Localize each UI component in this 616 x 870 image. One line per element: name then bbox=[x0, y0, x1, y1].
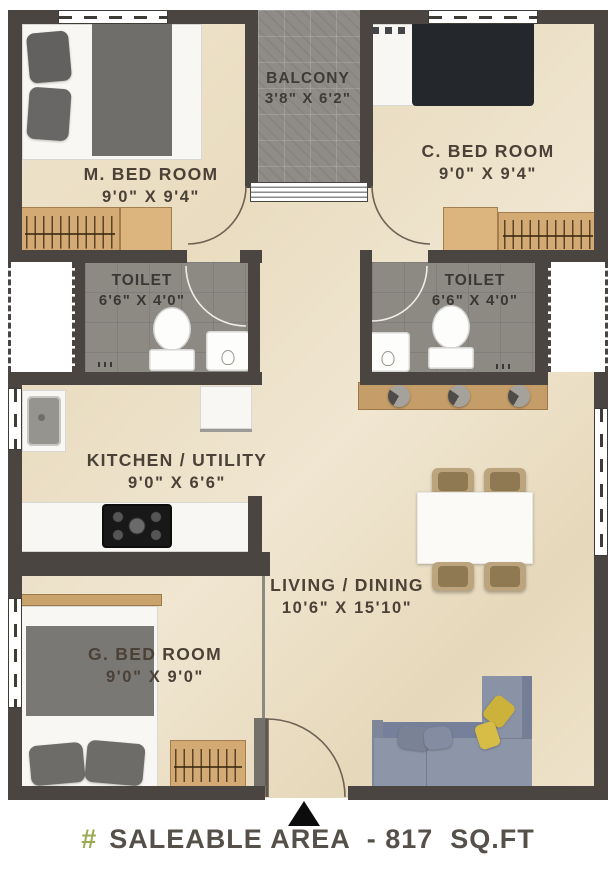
m-bedroom-pillow bbox=[26, 87, 72, 142]
room-dims: 6'6" X 4'0" bbox=[432, 292, 518, 309]
room-label-balcony: BALCONY 3'8" X 6'2" bbox=[265, 70, 351, 107]
room-dims: 6'6" X 4'0" bbox=[99, 292, 185, 309]
room-name: C. BED ROOM bbox=[422, 141, 555, 162]
right-duct bbox=[548, 262, 608, 372]
g-bedroom-pillow bbox=[28, 742, 85, 787]
entry-wall-stub bbox=[254, 718, 268, 786]
console-knob bbox=[508, 385, 530, 407]
balcony-sliding-door bbox=[250, 182, 368, 202]
g-bedroom-wall bbox=[8, 552, 270, 576]
room-dims: 10'6" X 15'10" bbox=[270, 599, 424, 618]
left-duct bbox=[8, 262, 75, 372]
room-dims: 9'0" X 9'0" bbox=[88, 668, 222, 687]
dining-chair bbox=[484, 468, 526, 495]
room-name: G. BED ROOM bbox=[88, 644, 222, 665]
toilet-right-basin bbox=[366, 332, 410, 372]
wall bbox=[360, 372, 548, 385]
balcony-wall bbox=[360, 10, 373, 188]
room-label-g-bedroom: G. BED ROOM 9'0" X 9'0" bbox=[88, 644, 222, 687]
m-bedroom-blanket bbox=[92, 24, 172, 156]
toilet-right-wc-tank bbox=[428, 347, 474, 369]
c-bedroom-headboard-detail bbox=[398, 27, 405, 34]
caption-text: SALEABLE AREA - 817 SQ.FT bbox=[109, 824, 535, 854]
g-bedroom-pillow bbox=[84, 740, 145, 787]
sofa-pillow-gray bbox=[423, 726, 453, 751]
room-label-c-bedroom: C. BED ROOM 9'0" X 9'4" bbox=[422, 141, 555, 184]
wall bbox=[8, 10, 22, 262]
room-label-toilet-left: TOILET 6'6" X 4'0" bbox=[99, 272, 185, 309]
room-dims: 9'0" X 9'4" bbox=[422, 165, 555, 184]
toilet-left-wall bbox=[248, 250, 260, 372]
dining-table bbox=[417, 492, 533, 564]
kitchen-window bbox=[8, 388, 22, 450]
living-window bbox=[594, 408, 608, 556]
c-bedroom-headboard-detail bbox=[385, 27, 392, 34]
c-bedroom-blanket bbox=[412, 24, 534, 106]
room-name: KITCHEN / UTILITY bbox=[87, 450, 268, 471]
room-dims: 3'8" X 6'2" bbox=[265, 90, 351, 107]
kitchen-wall-stub bbox=[248, 496, 262, 552]
toilet-left-wall bbox=[75, 262, 85, 372]
room-name: M. BED ROOM bbox=[84, 164, 219, 185]
room-dims: 9'0" X 9'4" bbox=[84, 188, 219, 207]
kitchen-fridge bbox=[200, 386, 252, 432]
toilet-right-faucet bbox=[496, 364, 512, 369]
kitchen-hob bbox=[104, 506, 170, 546]
g-bedroom-thin-wall bbox=[262, 576, 265, 718]
g-bedroom-wardrobe bbox=[170, 740, 246, 792]
toilet-right-wall bbox=[360, 250, 372, 372]
kitchen-sink bbox=[27, 396, 61, 446]
balcony-wall bbox=[245, 10, 258, 188]
console-knob bbox=[448, 385, 470, 407]
c-bedroom-headboard-detail bbox=[372, 27, 379, 34]
entry-arrow-icon bbox=[288, 801, 320, 826]
room-label-kitchen: KITCHEN / UTILITY 9'0" X 6'6" bbox=[87, 450, 268, 493]
c-bedroom-bed-head bbox=[368, 24, 414, 106]
room-label-m-bedroom: M. BED ROOM 9'0" X 9'4" bbox=[84, 164, 219, 207]
m-bedroom-pillow bbox=[26, 30, 72, 83]
room-name: TOILET bbox=[432, 272, 518, 290]
console-knob bbox=[388, 385, 410, 407]
floor-plan: M. BED ROOM 9'0" X 9'4" BALCONY 3'8" X 6… bbox=[0, 0, 616, 870]
kitchen-sink-tap bbox=[38, 414, 45, 421]
dining-chair bbox=[484, 562, 526, 591]
wall bbox=[348, 786, 608, 800]
dining-chair bbox=[432, 562, 474, 591]
g-bedroom-headboard bbox=[16, 594, 162, 606]
c-bedroom-window bbox=[428, 10, 538, 24]
g-bedroom-window bbox=[8, 598, 22, 708]
toilet-right-wall bbox=[535, 262, 548, 372]
toilet-left-wc bbox=[153, 307, 191, 351]
living-console bbox=[358, 382, 548, 410]
toilet-right-wc bbox=[432, 305, 470, 349]
kitchen-wall bbox=[8, 372, 262, 385]
toilet-left-faucet bbox=[98, 362, 114, 367]
m-bedroom-window bbox=[58, 10, 168, 24]
room-label-toilet-right: TOILET 6'6" X 4'0" bbox=[432, 272, 518, 309]
wall bbox=[8, 786, 265, 800]
room-label-living: LIVING / DINING 10'6" X 15'10" bbox=[270, 575, 424, 618]
wall bbox=[594, 10, 608, 262]
hash-symbol: # bbox=[81, 824, 97, 854]
room-dims: 9'0" X 6'6" bbox=[87, 474, 268, 493]
room-name: TOILET bbox=[99, 272, 185, 290]
saleable-area-caption: #SALEABLE AREA - 817 SQ.FT bbox=[0, 824, 616, 855]
room-name: BALCONY bbox=[265, 70, 351, 88]
toilet-left-wc-tank bbox=[149, 349, 195, 371]
dining-chair bbox=[432, 468, 474, 495]
toilet-left-basin bbox=[206, 331, 250, 371]
room-name: LIVING / DINING bbox=[270, 575, 424, 596]
